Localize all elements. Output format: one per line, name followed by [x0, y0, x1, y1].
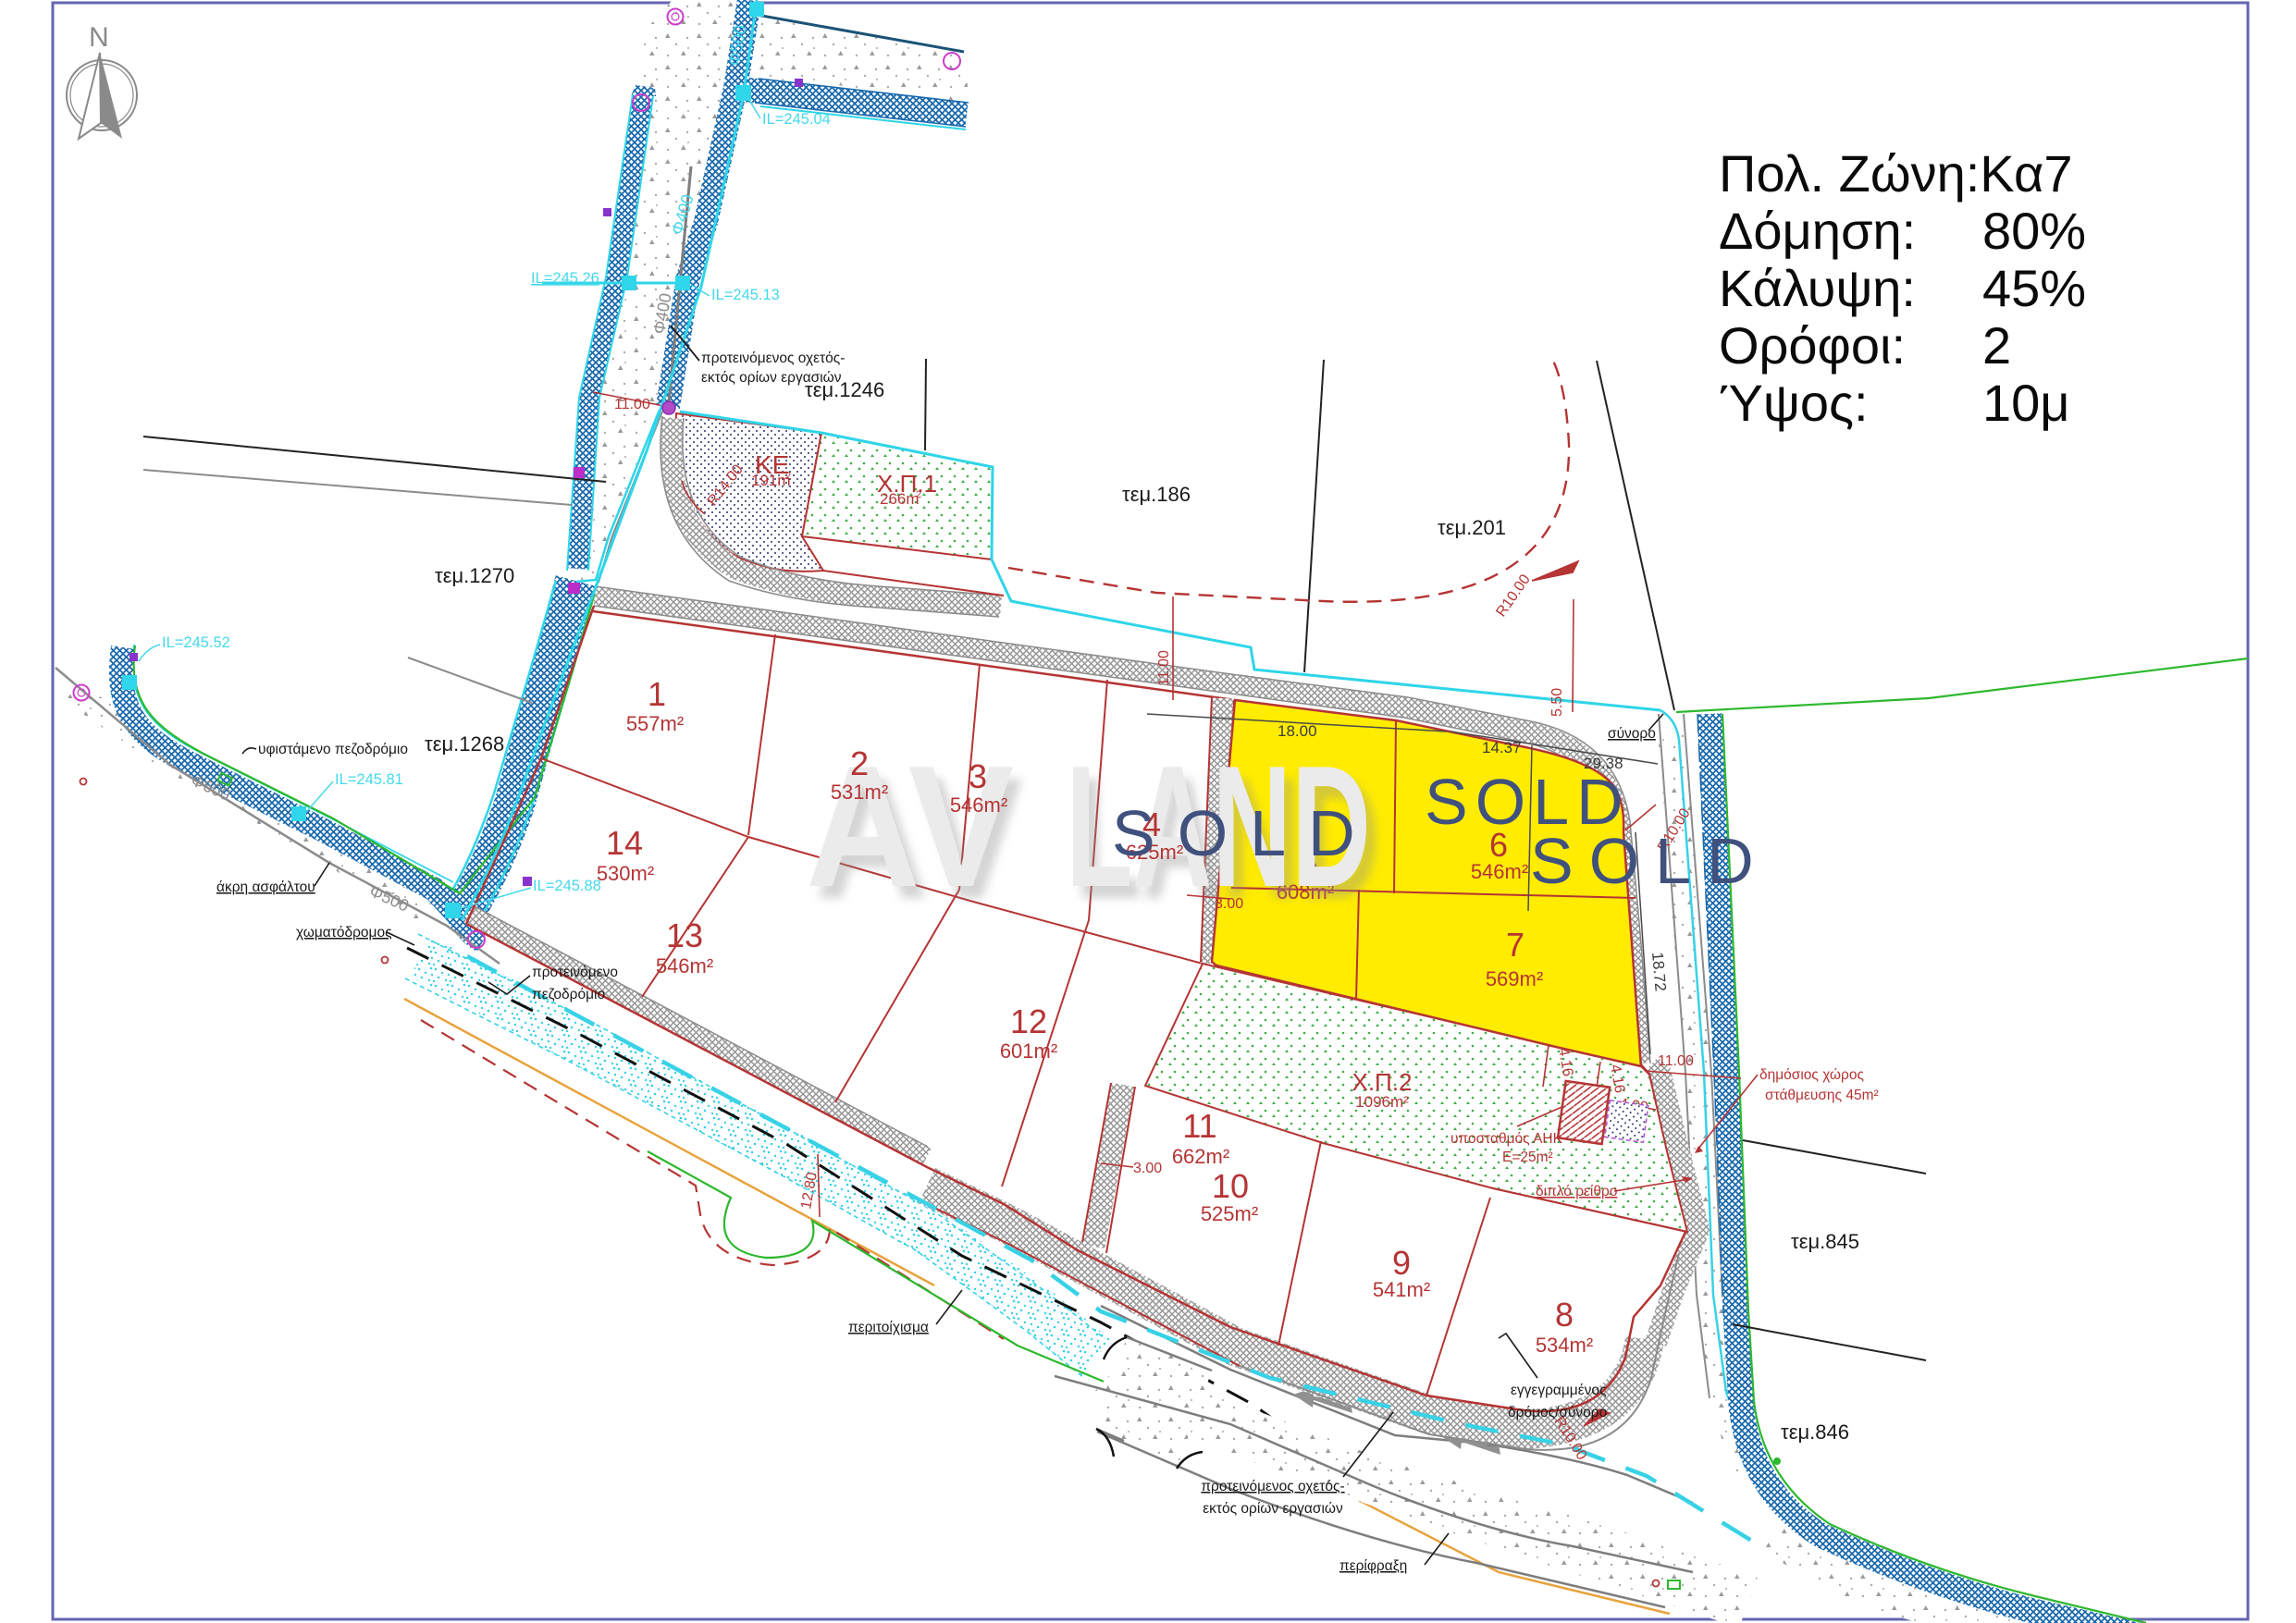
svg-text:11.00: 11.00: [1658, 1053, 1694, 1069]
svg-text:546m²: 546m²: [656, 954, 713, 977]
svg-text:Κάλυψη:: Κάλυψη:: [1719, 259, 1916, 317]
svg-text:3.00: 3.00: [1133, 1161, 1162, 1176]
svg-text:IL=245.52: IL=245.52: [162, 634, 230, 651]
svg-text:2: 2: [1982, 316, 2011, 375]
svg-text:534m²: 534m²: [1536, 1334, 1593, 1357]
svg-text:περίφραξη: περίφραξη: [1339, 1558, 1407, 1574]
svg-text:N: N: [89, 22, 109, 53]
svg-text:τεμ.1268: τεμ.1268: [425, 732, 504, 756]
svg-text:3: 3: [969, 757, 987, 795]
svg-text:7: 7: [1506, 926, 1524, 964]
svg-text:δημόσιος χώρος: δημόσιος χώρος: [1759, 1067, 1864, 1083]
svg-text:Ορόφοι:: Ορόφοι:: [1719, 316, 1906, 375]
svg-text:530m²: 530m²: [597, 862, 654, 885]
svg-text:541m²: 541m²: [1373, 1278, 1430, 1301]
svg-text:δρόμος/σύνορο: δρόμος/σύνορο: [1508, 1405, 1607, 1420]
svg-text:1096m²: 1096m²: [1355, 1093, 1409, 1111]
svg-text:περιτοίχισμα: περιτοίχισμα: [848, 1320, 929, 1335]
svg-text:2: 2: [916, 489, 921, 500]
svg-text:2: 2: [785, 471, 791, 482]
svg-text:τεμ.186: τεμ.186: [1122, 483, 1191, 506]
svg-text:8: 8: [1555, 1296, 1574, 1334]
svg-text:5.50: 5.50: [1549, 688, 1565, 717]
svg-text:σύνορο: σύνορο: [1608, 726, 1656, 742]
svg-text:στάθμευσης 45m²: στάθμευσης 45m²: [1765, 1088, 1879, 1103]
svg-text:Ύψος:: Ύψος:: [1719, 374, 1869, 432]
svg-text:557m²: 557m²: [626, 712, 684, 735]
svg-text:11: 11: [1182, 1107, 1216, 1145]
svg-text:2: 2: [850, 744, 869, 782]
svg-text:10μ: 10μ: [1982, 374, 2070, 432]
svg-text:14.37: 14.37: [1482, 739, 1522, 756]
svg-text:10: 10: [1212, 1167, 1249, 1205]
svg-text:14: 14: [606, 824, 643, 862]
svg-text:τεμ.1270: τεμ.1270: [435, 564, 514, 587]
svg-text:SOLD: SOLD: [1112, 797, 1377, 869]
svg-text:11.00: 11.00: [614, 397, 650, 412]
svg-text:80%: 80%: [1982, 202, 2086, 260]
svg-text:3.00: 3.00: [1215, 896, 1243, 912]
svg-text:Πολ. Ζώνη:Κα7: Πολ. Ζώνη:Κα7: [1719, 144, 2072, 203]
svg-text:πεζοδρόμιο: πεζοδρόμιο: [532, 987, 605, 1002]
svg-text:9: 9: [1392, 1244, 1411, 1282]
svg-text:τεμ.846: τεμ.846: [1781, 1420, 1849, 1444]
svg-text:45%: 45%: [1982, 259, 2086, 317]
svg-text:546m²: 546m²: [950, 793, 1007, 817]
svg-text:12: 12: [1010, 1002, 1047, 1040]
svg-text:χωματόδρομος: χωματόδρομος: [296, 925, 392, 941]
svg-text:11.00: 11.00: [1156, 650, 1172, 686]
svg-text:SOLD: SOLD: [1530, 825, 1770, 897]
svg-text:προτεινόμενος οχετός-: προτεινόμενος οχετός-: [701, 350, 845, 366]
svg-text:τεμ.845: τεμ.845: [1791, 1230, 1859, 1253]
svg-text:662m²: 662m²: [1172, 1145, 1229, 1168]
svg-text:Χ.Π.2: Χ.Π.2: [1352, 1068, 1412, 1096]
svg-text:IL=245.26: IL=245.26: [531, 270, 599, 287]
svg-text:IL=245.13: IL=245.13: [711, 287, 780, 303]
svg-text:τεμ.201: τεμ.201: [1438, 516, 1506, 539]
svg-text:IL=245.04: IL=245.04: [762, 111, 831, 128]
svg-text:546m²: 546m²: [1471, 860, 1528, 883]
svg-text:569m²: 569m²: [1486, 967, 1543, 990]
svg-text:Ε=25m²: Ε=25m²: [1502, 1150, 1553, 1165]
svg-text:άκρη ασφάλτου: άκρη ασφάλτου: [216, 879, 315, 895]
svg-text:IL=245.88: IL=245.88: [533, 878, 601, 894]
svg-text:υφιστάμενο πεζοδρόμιο: υφιστάμενο πεζοδρόμιο: [258, 742, 408, 757]
svg-text:531m²: 531m²: [831, 781, 888, 804]
svg-text:13: 13: [666, 916, 703, 954]
svg-text:Δόμηση:: Δόμηση:: [1719, 202, 1916, 260]
svg-text:1: 1: [648, 675, 666, 713]
svg-text:προτεινόμενο: προτεινόμενο: [532, 965, 618, 980]
svg-text:εκτός ορίων εργασιών: εκτός ορίων εργασιών: [1203, 1501, 1343, 1517]
svg-text:18.72: 18.72: [1648, 952, 1670, 992]
svg-text:εγγεγραμμένος: εγγεγραμμένος: [1511, 1383, 1606, 1398]
svg-text:525m²: 525m²: [1201, 1202, 1258, 1225]
svg-text:προτεινόμενος οχετός-: προτεινόμενος οχετός-: [1201, 1479, 1344, 1494]
svg-text:εκτός ορίων εργασιών: εκτός ορίων εργασιών: [701, 370, 842, 386]
svg-text:IL=245.81: IL=245.81: [335, 771, 403, 788]
svg-text:266m: 266m: [880, 490, 920, 508]
svg-text:601m²: 601m²: [1000, 1039, 1057, 1063]
svg-text:διπλό ρείθρο: διπλό ρείθρο: [1536, 1184, 1617, 1199]
svg-text:υποσταθμός ΑΗΚ: υποσταθμός ΑΗΚ: [1450, 1131, 1563, 1147]
